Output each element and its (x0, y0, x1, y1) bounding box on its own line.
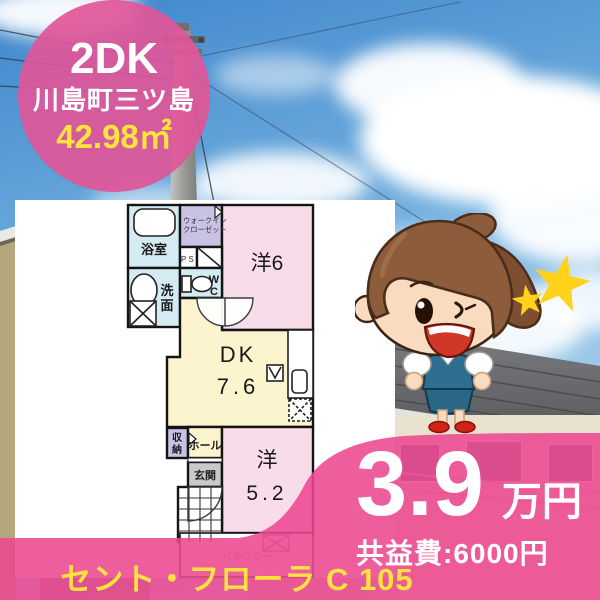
listing-flyer: 浴室 ウォークイン クローゼット PS 洗 面 W C 洋6 DK 7.6 収 … (0, 0, 600, 600)
rent-amount: 3.9 (356, 438, 484, 530)
badge-area: 42.98㎡ (56, 118, 172, 156)
rent-unit: 万円 (502, 469, 582, 527)
badge-circle: 2DK 川島町三ツ島 42.98㎡ (18, 0, 210, 192)
badge-location: 川島町三ツ島 (33, 83, 195, 118)
property-name: セント・フローラ C 105 (37, 554, 437, 599)
badge-layout-type: 2DK (70, 36, 158, 82)
price-block: 3.9 万円 共益費:6000円 (356, 438, 582, 572)
